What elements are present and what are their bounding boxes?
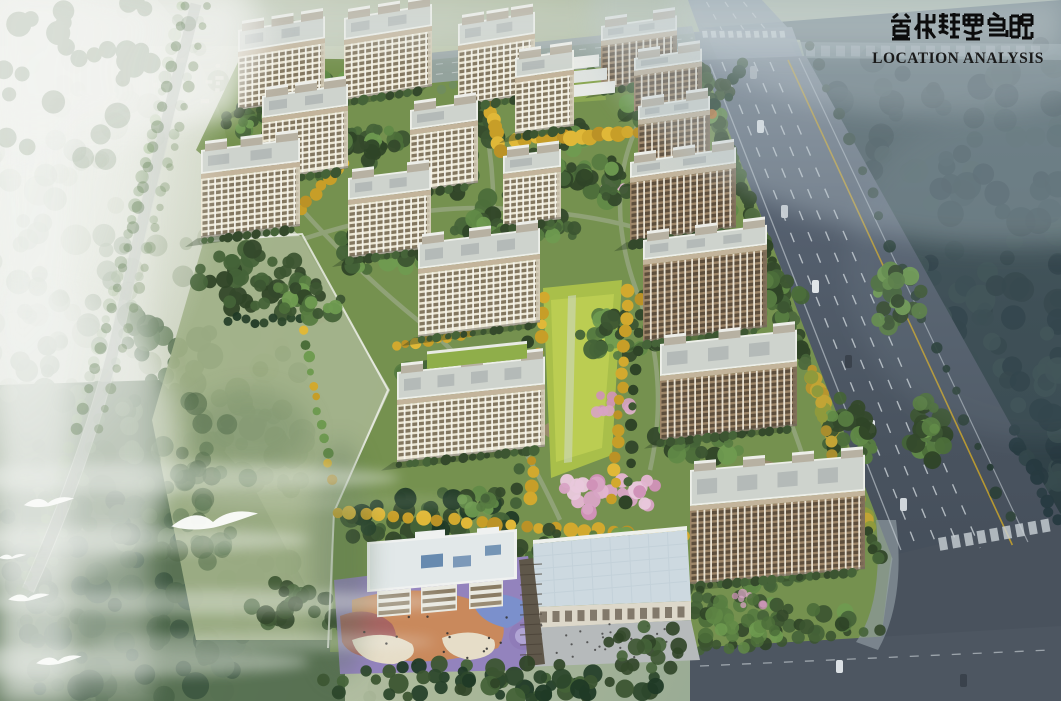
svg-text:LOCATION ANALYSIS: LOCATION ANALYSIS bbox=[872, 50, 1044, 67]
